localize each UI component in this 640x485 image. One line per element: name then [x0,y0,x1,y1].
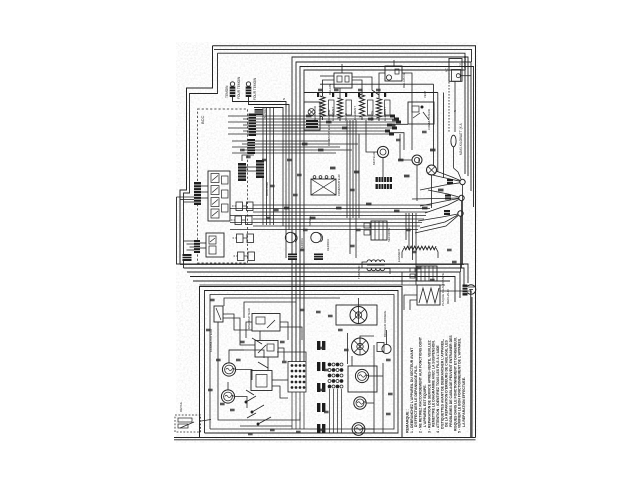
svg-text:N: N [282,98,286,100]
svg-text:NC: NC [445,68,449,72]
svg-text:TH: TH [458,63,462,67]
svg-text:MAXI-KILOWATT (X A: MAXI-KILOWATT (X A [459,122,463,155]
svg-text:RELAIS DE: RELAIS DE [402,72,406,88]
svg-text:ELEMENT: ELEMENT [383,107,387,121]
svg-text:DETAIL: DETAIL [179,401,183,412]
svg-text:INTERRUPTEUR: INTERRUPTEUR [247,308,251,330]
svg-text:N: N [453,110,457,112]
svg-text:ELEMENT: ELEMENT [397,248,401,262]
svg-text:LA REPARATION EFFECTUEE.: LA REPARATION EFFECTUEE. [462,377,466,427]
svg-text:PLAQUE CHAUFFANTE: PLAQUE CHAUFFANTE [441,273,445,306]
svg-text:HORLOGE: HORLOGE [265,182,269,196]
svg-text:VERROU: VERROU [326,239,330,251]
svg-text:VERROU: VERROU [300,238,304,250]
svg-text:RELAIS: RELAIS [328,84,332,95]
svg-text:VOUTE: VOUTE [370,111,374,121]
svg-text:VENT: VENT [423,90,427,98]
svg-text:P5: P5 [245,166,249,170]
svg-text:COMMUTATEUR: COMMUTATEUR [337,174,341,196]
svg-text:SOLE: SOLE [344,113,348,121]
svg-text:SONDE: SONDE [308,216,312,226]
svg-text:TEMOIN: TEMOIN [225,85,229,98]
svg-text:TRANSFO: TRANSFO [357,265,361,279]
svg-text:FOUR TEMOIN: FOUR TEMOIN [237,76,241,99]
svg-text:VENT: VENT [417,157,421,165]
svg-text:ELEMENT: ELEMENT [331,107,335,121]
svg-text:LIMITEUR: LIMITEUR [463,55,467,70]
svg-text:COMMUTATEUR HORLOGE: COMMUTATEUR HORLOGE [327,109,331,146]
svg-text:COMMUTATEUR: COMMUTATEUR [209,328,213,352]
svg-text:ELEMENT: ELEMENT [353,106,357,120]
svg-text:SECURITE: SECURITE [387,228,391,242]
svg-text:FOUR TEMOIN: FOUR TEMOIN [253,77,257,100]
svg-text:MOTEUR: MOTEUR [372,151,376,165]
svg-text:BCC: BCC [200,115,205,124]
svg-text:COMMUTATEUR: COMMUTATEUR [427,109,431,130]
